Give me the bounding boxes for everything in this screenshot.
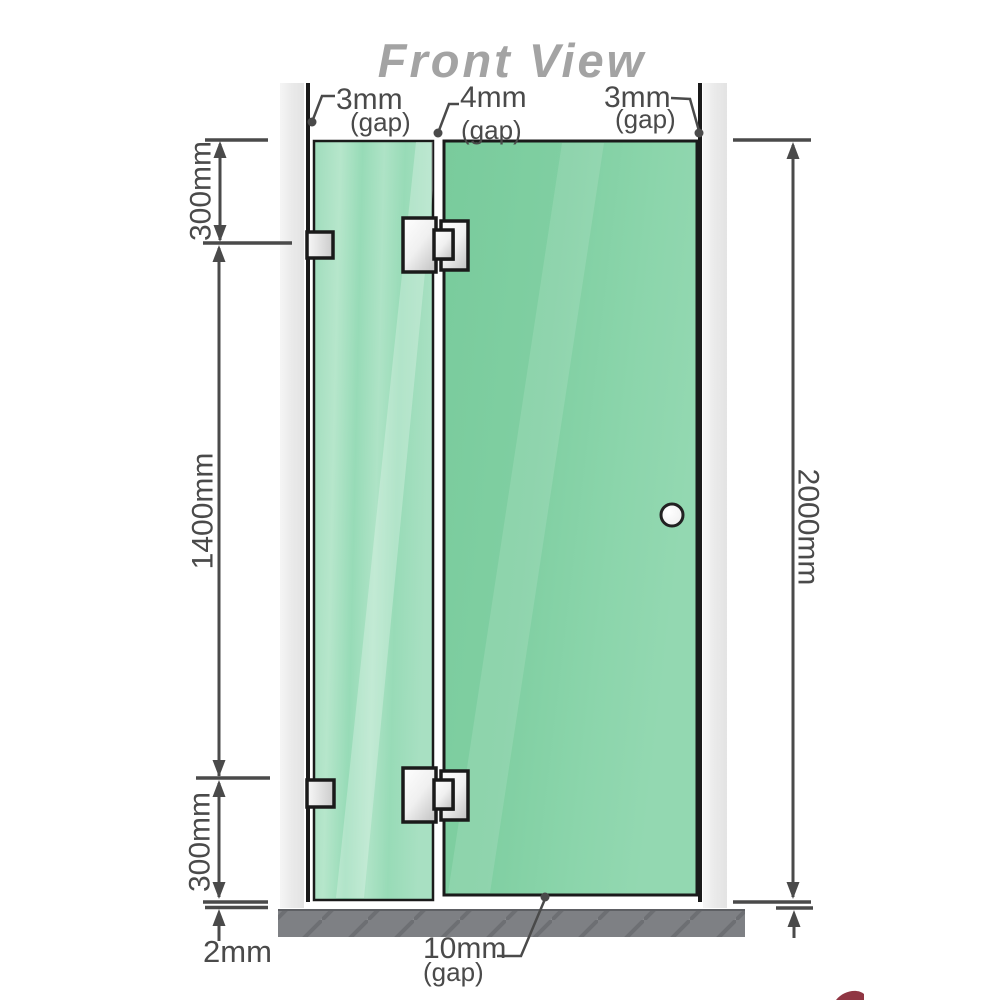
segment-middle-label: 1400mm [187, 453, 220, 570]
hinge-knuckle [434, 780, 453, 809]
leader-dot [434, 129, 443, 138]
total-height-label: 2000mm [792, 469, 825, 586]
leader-line [312, 96, 335, 122]
leader-line [438, 104, 459, 133]
page-title: Front View [378, 34, 647, 87]
gap-qualifier: (gap) [615, 104, 676, 134]
gap-callout-top-right: 3mm (gap) [604, 81, 704, 138]
left-dimensions: 300mm 1400mm 300mm 2mm [184, 140, 293, 969]
floor [278, 909, 745, 937]
leader-dot [308, 118, 317, 127]
segment-bottom-label: 300mm [184, 792, 217, 892]
hinge-left-plate [403, 768, 436, 822]
diagram-canvas: Front View [0, 0, 1000, 1000]
arrowhead-up [788, 910, 801, 927]
wall-bracket-top [307, 232, 333, 258]
hinge-bottom [403, 768, 468, 822]
gap-callout-top-left: 3mm (gap) [308, 83, 411, 137]
gap-callout-top-middle: 4mm (gap) [434, 81, 527, 145]
arrowhead-up [213, 245, 226, 262]
right-dimensions: 2000mm [733, 140, 825, 938]
arrowhead-up [213, 909, 226, 926]
right-wall-channel [703, 83, 727, 908]
leader-dot [541, 893, 550, 902]
wall-bracket-bottom [307, 780, 334, 807]
gap-qualifier: (gap) [461, 115, 522, 145]
gap-callout-bottom: 10mm (gap) [423, 893, 550, 988]
arrowhead-up [787, 142, 800, 159]
leader-dot [695, 129, 704, 138]
floor-gap-label: 2mm [203, 934, 272, 969]
hinge-top [403, 218, 468, 272]
watermark-artifact [836, 991, 864, 1000]
left-wall-channel [280, 83, 304, 908]
door-handle-knob [661, 504, 683, 526]
segment-top-label: 300mm [185, 141, 218, 241]
front-view-diagram: Front View [0, 0, 1000, 1000]
floor-slab [278, 909, 745, 937]
gap-qualifier: (gap) [350, 107, 411, 137]
gap-value: 4mm [460, 81, 527, 114]
gap-qualifier: (gap) [423, 957, 484, 987]
arrowhead-down [213, 760, 226, 777]
hinge-knuckle [434, 230, 453, 259]
hinge-left-plate [403, 218, 436, 272]
arrowhead-down [787, 882, 800, 899]
